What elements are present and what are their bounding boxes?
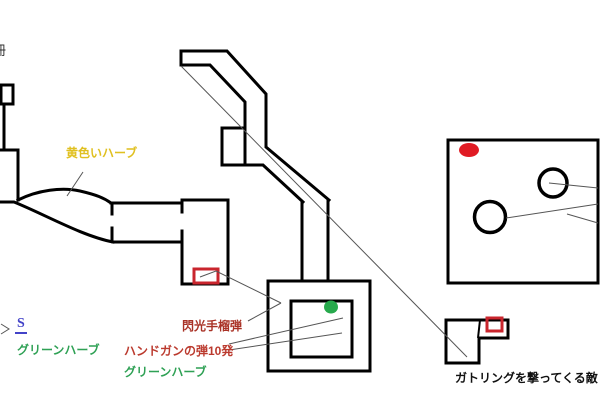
circle2-pointer — [506, 204, 598, 218]
flash-grenade-pointer — [248, 303, 281, 321]
save-point-label: S — [15, 317, 27, 334]
handgun-pointer-1 — [229, 318, 343, 344]
green-herb-label-left: グリーンハーブ — [17, 344, 100, 356]
gatling-enemy-label: ガトリングを撃ってくる敵 — [455, 372, 598, 384]
clipped-kanji-label: 冊 — [0, 44, 6, 57]
center-room — [268, 281, 370, 371]
save-room — [182, 200, 228, 284]
save-arrow-icon — [1, 324, 9, 334]
right-room-pointer — [567, 214, 598, 223]
corridor-alcove — [222, 128, 245, 165]
red-marker-ellipse — [459, 143, 479, 157]
top-left-structure — [0, 85, 228, 284]
map-canvas: 冊 黄色いハーブ S グリーンハーブ 閃光手榴弾 ハンドガンの弾10発 グリーン… — [0, 0, 600, 400]
small-room-top-left — [1, 85, 13, 104]
curved-corridor-bottom-wall — [0, 202, 113, 242]
map-drawing — [0, 0, 600, 400]
zigzag-corridor — [181, 51, 329, 281]
yellow-herb-label: 黄色いハーブ — [66, 147, 137, 159]
gatling-room — [446, 318, 508, 363]
annotation-lines — [1, 66, 598, 357]
gatling-room-outline — [446, 320, 508, 363]
right-room — [448, 140, 598, 283]
handgun-pointer-2 — [229, 333, 342, 350]
circle-marker-2 — [475, 202, 506, 233]
green-herb-label-center: グリーンハーブ — [124, 366, 207, 378]
center-room-inner — [291, 301, 352, 357]
handgun-ammo-label: ハンドガンの弾10発 — [124, 345, 233, 357]
right-room-outline — [448, 140, 598, 283]
circle1-pointer — [549, 183, 598, 188]
curved-corridor-top-wall — [18, 189, 111, 203]
flash-grenade-label: 閃光手榴弾 — [182, 320, 242, 332]
long-pointer-line — [181, 66, 467, 357]
green-item-marker — [324, 301, 338, 314]
